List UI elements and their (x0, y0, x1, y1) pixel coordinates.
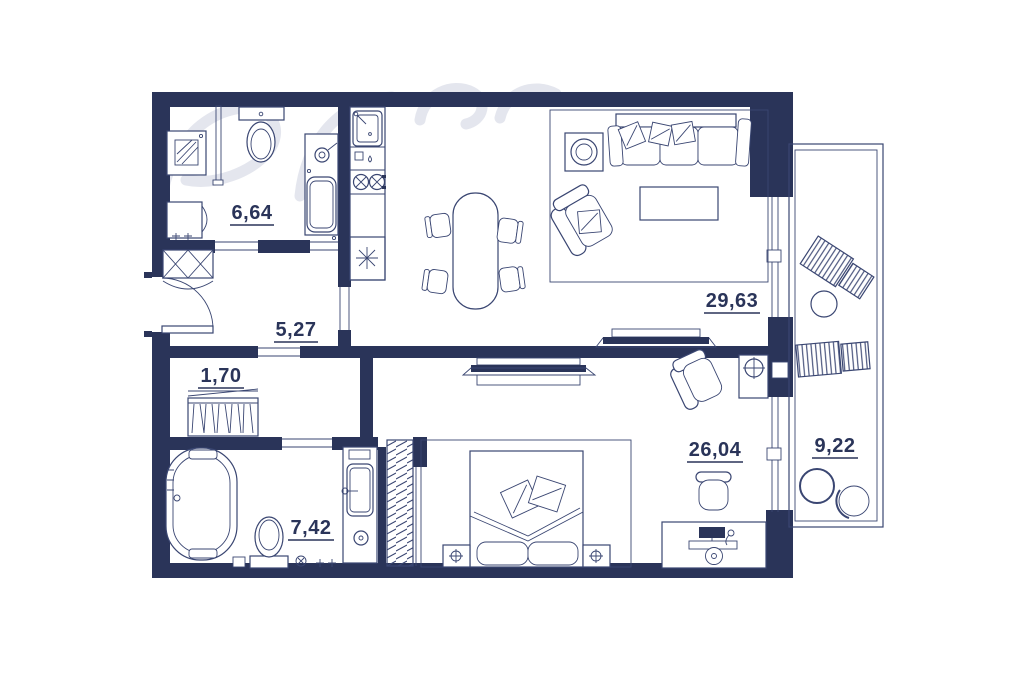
balcony-chair-icon (836, 486, 869, 518)
desk-icon (662, 522, 766, 568)
desk-chair-icon (696, 472, 731, 510)
label-bedroom: 26,04 (689, 439, 742, 461)
entrance-door (162, 278, 213, 333)
wall-bath-bedroom (378, 447, 386, 567)
floor-plan-drawing: 6,64 5,27 1,70 7,42 29,63 26,04 9,22 (0, 0, 1024, 693)
built-in-wardrobe-icon (387, 440, 416, 566)
toilet-icon-main (233, 517, 288, 568)
nightstand-icon-left (443, 545, 470, 567)
wardrobe-hangers-icon (188, 389, 258, 436)
kitchen-counter-icon (350, 107, 386, 280)
balcony-round-table-icon (800, 469, 834, 503)
label-bathroom-small: 6,64 (232, 202, 273, 224)
tv-console-bedroom-icon (463, 358, 595, 385)
label-closet: 1,70 (201, 365, 242, 387)
nightstand-icon-right (583, 545, 610, 567)
sink-vanity-icon-main (342, 447, 377, 563)
door-frame-nub-bottom (144, 331, 152, 337)
sink-vanity-icon-top (305, 134, 338, 240)
label-hallway: 5,27 (276, 319, 317, 341)
wall-bath-top-a (155, 437, 282, 450)
dining-table-icon (422, 193, 526, 309)
tv-console-living-icon (596, 329, 716, 347)
double-bed-icon (470, 451, 583, 567)
label-bathroom-main: 7,42 (291, 517, 332, 539)
wall-left-lower (152, 332, 170, 578)
room-hallway (163, 250, 213, 289)
window-living-balcony (767, 197, 781, 317)
dining-chair (422, 268, 449, 294)
dining-chair (424, 213, 451, 239)
dining-chair (496, 217, 523, 244)
door-swing-arc (162, 278, 213, 329)
label-balcony: 9,22 (815, 435, 856, 457)
room-wardrobe-closet (188, 389, 258, 436)
armchair-living-icon (545, 182, 617, 258)
wall-below-wc-b (258, 240, 310, 253)
side-table-icon (565, 133, 603, 171)
ventilation-shaft-icon (739, 355, 768, 398)
sofa-icon (608, 114, 752, 166)
wall-left-upper (152, 92, 170, 277)
door-frame-nub-top (144, 272, 152, 278)
wall-kitchen (338, 107, 351, 287)
bathtub-icon (166, 448, 237, 560)
room-balcony (789, 144, 883, 527)
wall-mid-left (170, 346, 258, 358)
cabinet-icon (167, 202, 207, 240)
wall-closet-right (360, 358, 373, 445)
shoe-cabinet-icon (163, 250, 213, 289)
dining-chair (498, 265, 525, 292)
walls (144, 92, 793, 578)
balcony-railing-inner (795, 150, 877, 521)
wall-corner-top-right (750, 92, 793, 197)
wall-top (155, 92, 788, 107)
wall-bedroom-stub (413, 437, 427, 467)
balcony-side-table-icon (811, 291, 837, 317)
lounge-chair-icon-upper (800, 236, 876, 301)
lounge-chair-icon-lower (796, 339, 871, 377)
coffee-table-icon (640, 187, 718, 220)
floor-plan: 6,64 5,27 1,70 7,42 29,63 26,04 9,22 (0, 0, 1024, 693)
door-thresholds (215, 242, 349, 447)
balcony-railing-outer (789, 144, 883, 527)
washing-machine-icon (167, 131, 206, 175)
label-living: 29,63 (706, 290, 759, 312)
door-leaf (162, 326, 213, 333)
